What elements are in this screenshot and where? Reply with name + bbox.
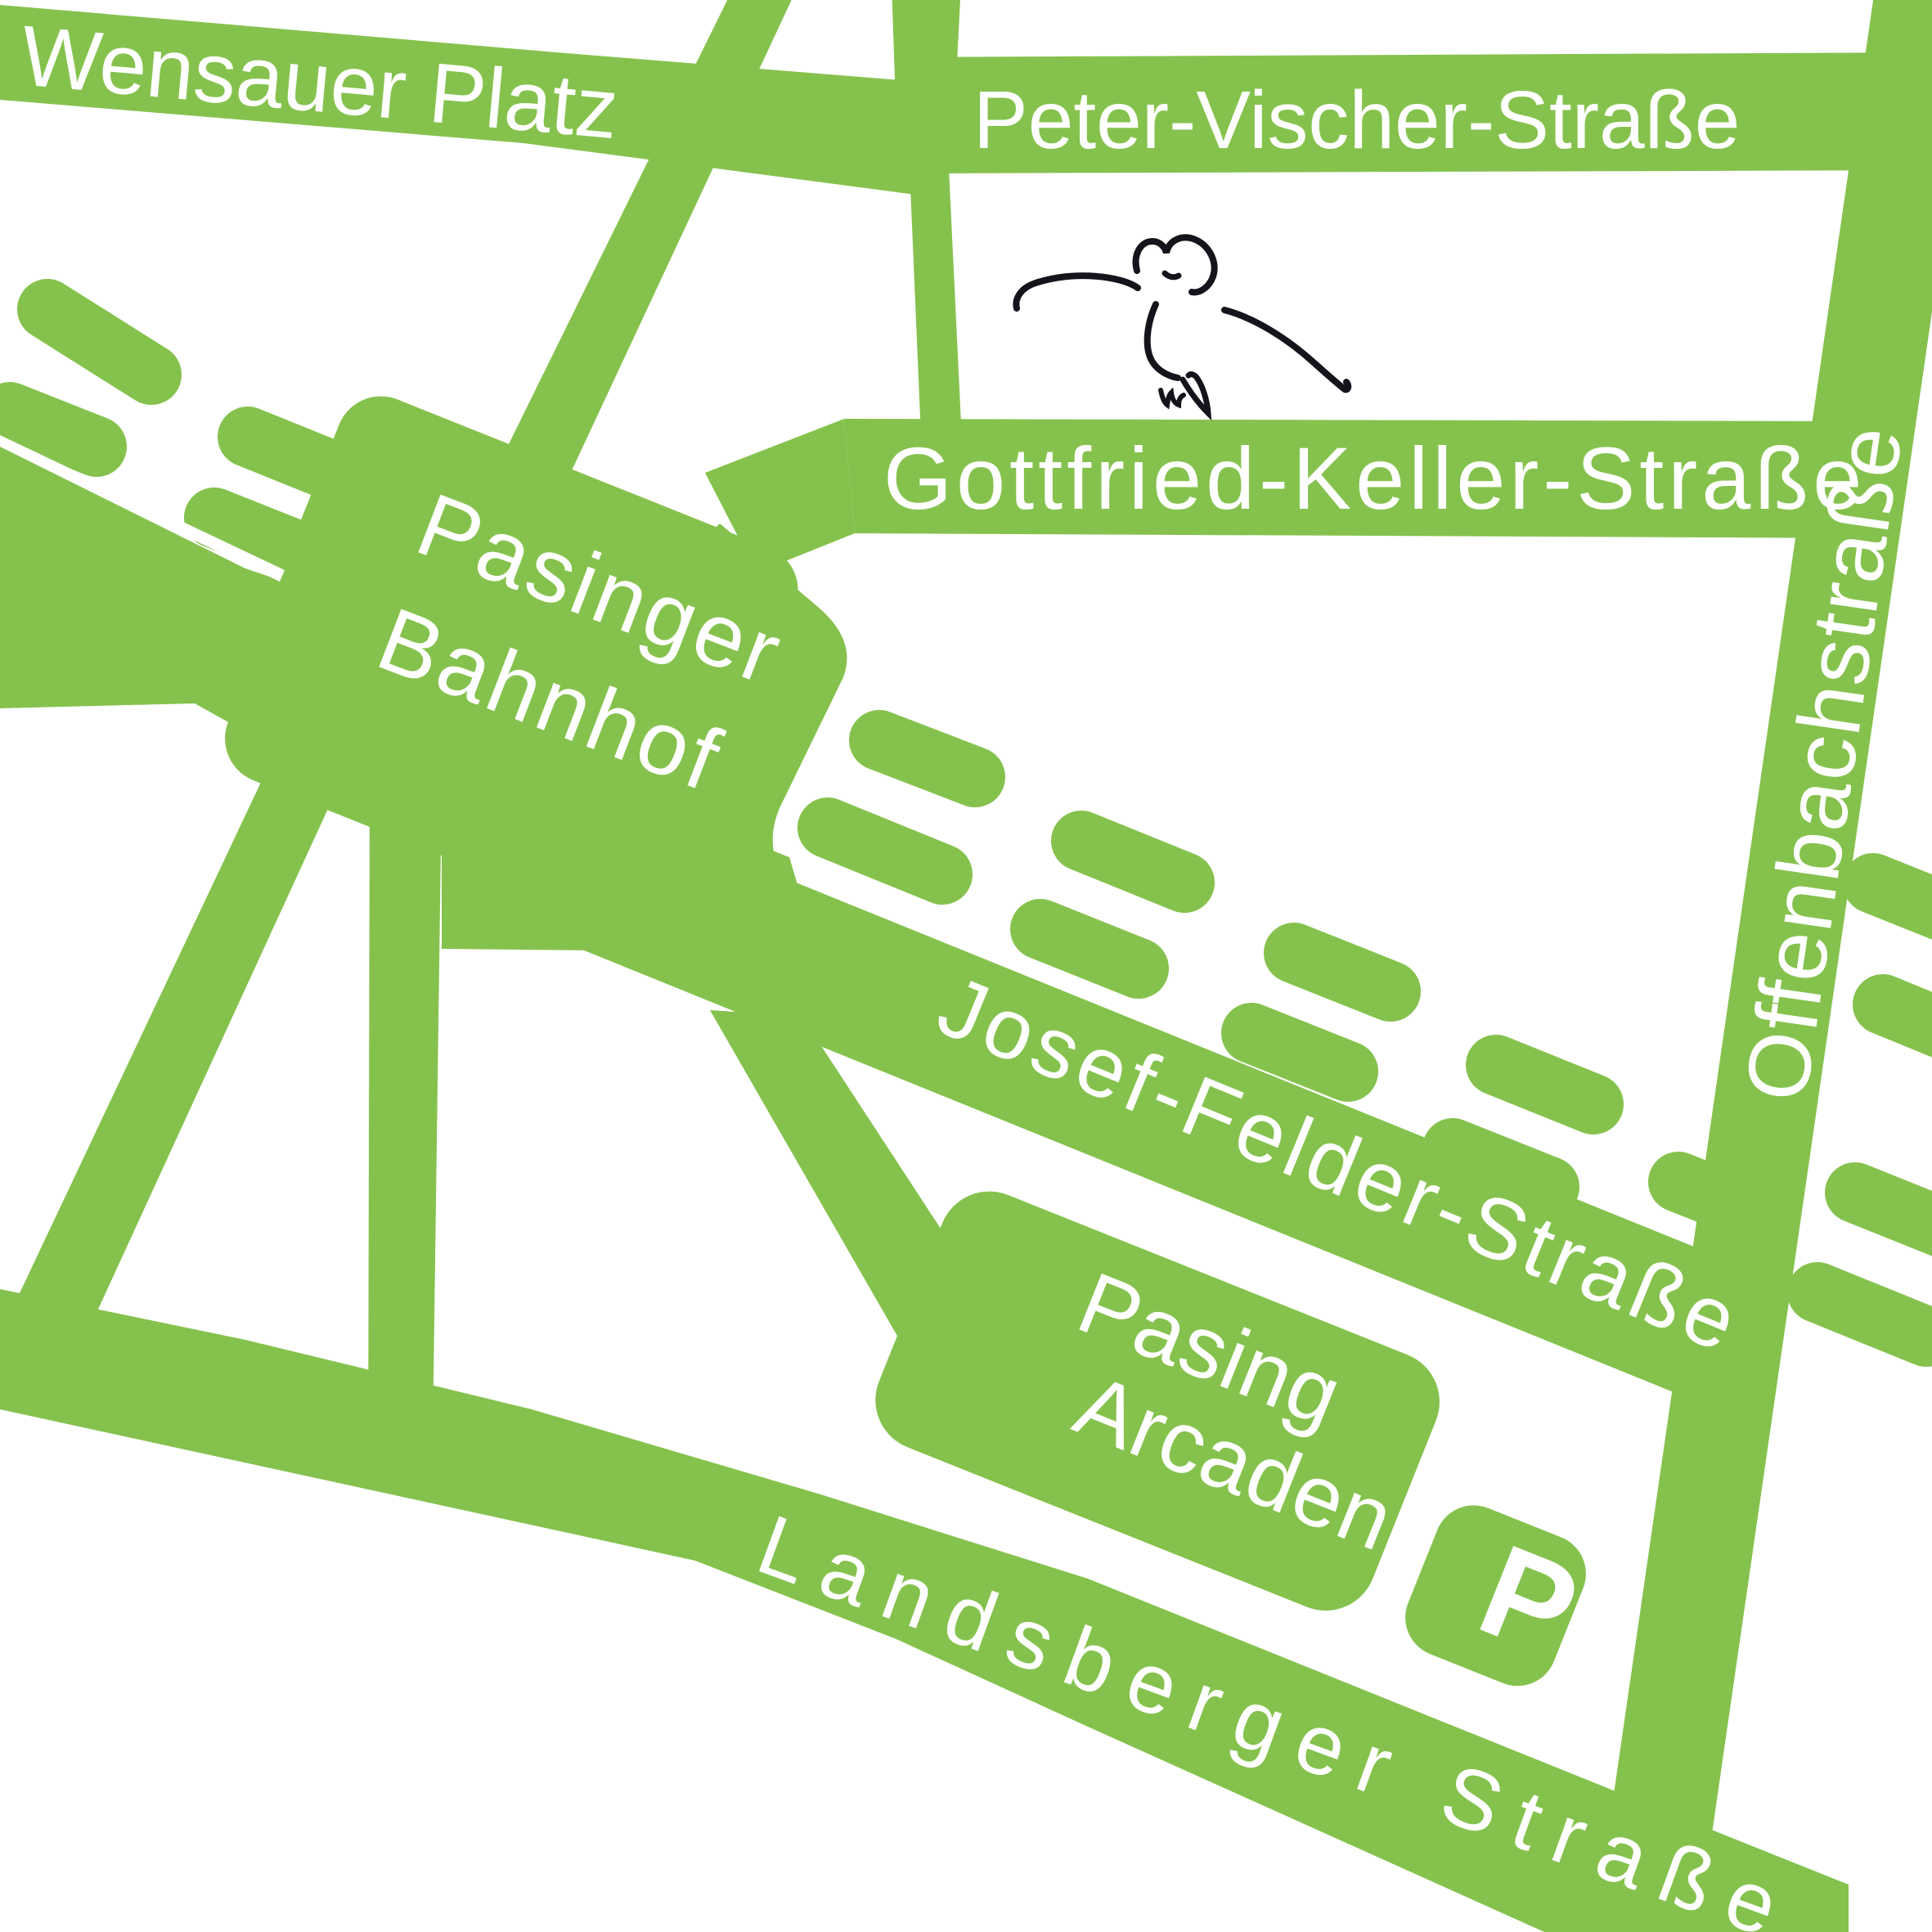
svg-text:Peter-Vischer-Straße: Peter-Vischer-Straße: [973, 74, 1740, 166]
svg-text:Gottfried-Keller-Straße: Gottfried-Keller-Straße: [883, 429, 1866, 528]
